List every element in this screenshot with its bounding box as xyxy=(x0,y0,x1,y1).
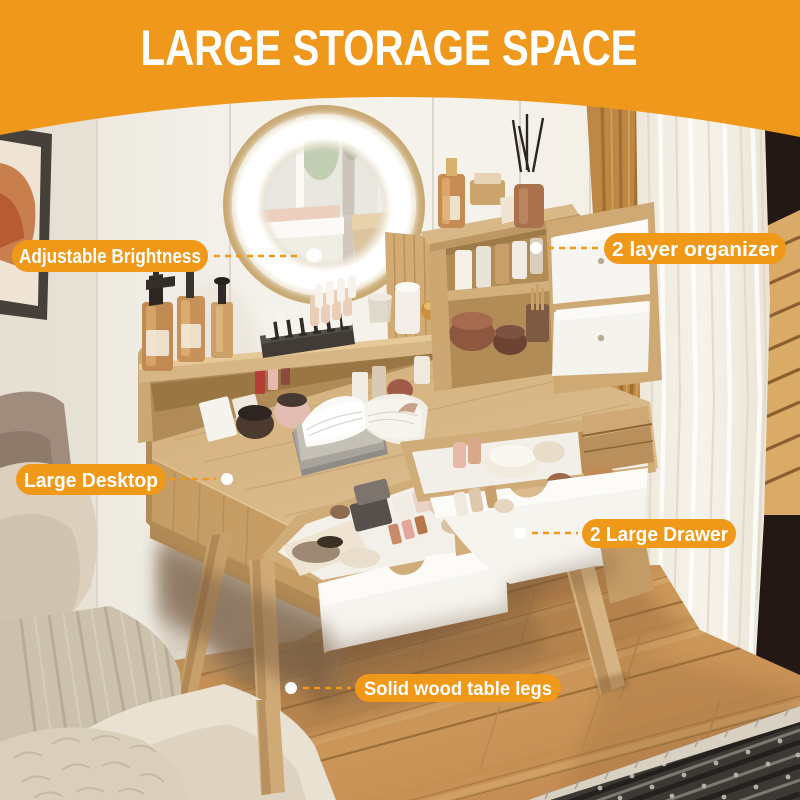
svg-text:2 Large Drawer: 2 Large Drawer xyxy=(590,524,728,546)
svg-text:Solid wood table legs: Solid wood table legs xyxy=(364,679,552,700)
svg-text:LARGE STORAGE SPACE: LARGE STORAGE SPACE xyxy=(141,20,638,76)
svg-text:2 layer organizer: 2 layer organizer xyxy=(612,239,778,261)
svg-text:Adjustable Brightness: Adjustable Brightness xyxy=(19,246,201,268)
svg-text:Large Desktop: Large Desktop xyxy=(24,470,158,492)
